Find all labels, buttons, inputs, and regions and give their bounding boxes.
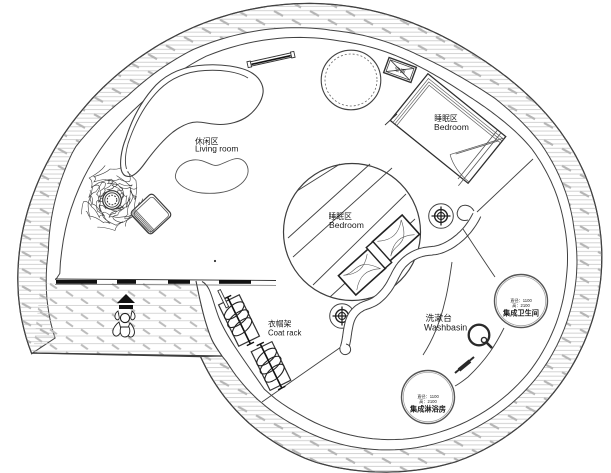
svg-text:Living room: Living room bbox=[195, 144, 238, 154]
svg-text:Coat rack: Coat rack bbox=[268, 329, 301, 338]
svg-text:衣帽架: 衣帽架 bbox=[268, 319, 292, 329]
svg-text:Bedroom: Bedroom bbox=[329, 220, 364, 230]
svg-text:Bedroom: Bedroom bbox=[434, 122, 469, 132]
svg-text:Washbasin: Washbasin bbox=[424, 323, 467, 333]
svg-text:集成淋浴房: 集成淋浴房 bbox=[409, 405, 446, 414]
svg-text:集成卫生间: 集成卫生间 bbox=[502, 309, 539, 318]
svg-text:洗漱台: 洗漱台 bbox=[426, 312, 453, 323]
